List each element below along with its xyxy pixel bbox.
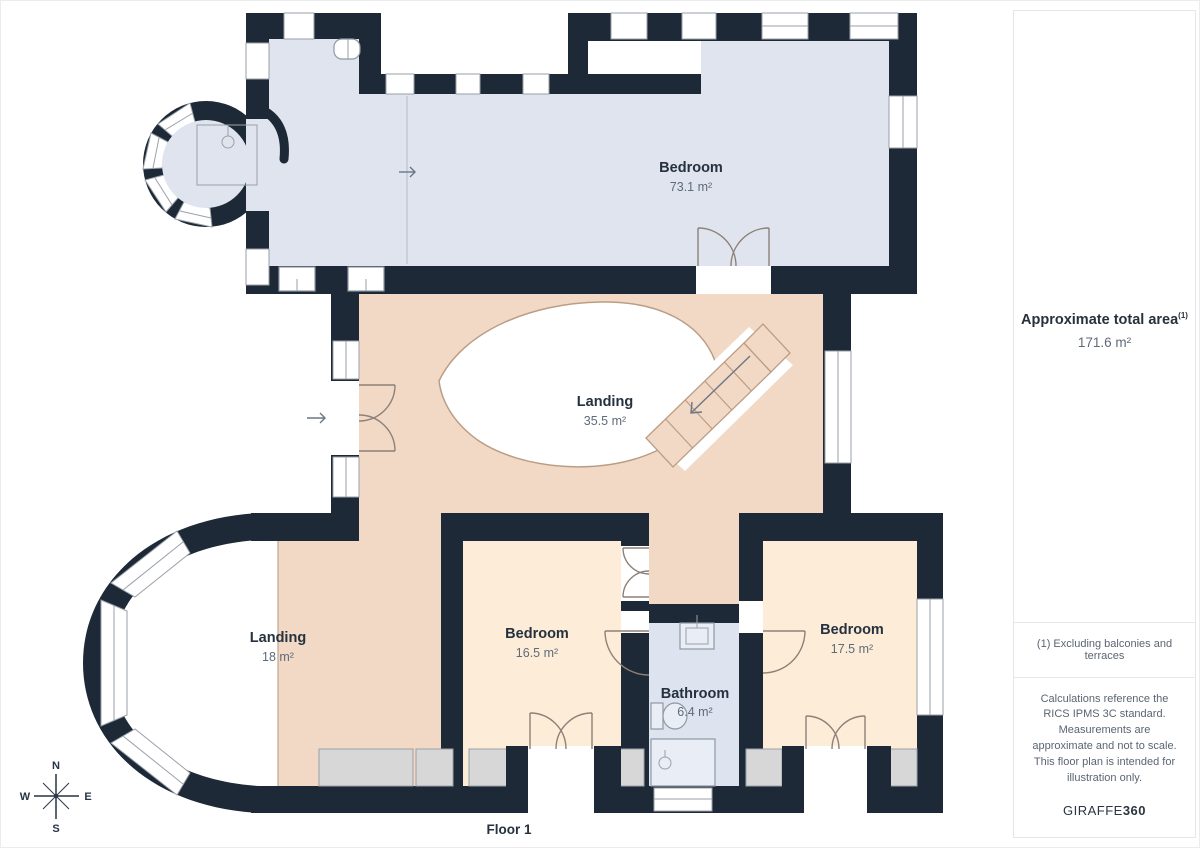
compass-n: N [52,760,60,772]
room-area: 18 m² [262,650,294,664]
room-label: Bedroom [820,622,884,638]
room-label: Bedroom [659,160,723,176]
sidebar-footnote: (1) Excluding balconies and terraces [1014,622,1195,677]
entry-arrow-icon [307,413,325,423]
room-label: Landing [577,394,633,410]
room-area: 16.5 m² [516,646,558,660]
info-sidebar: Approximate total area(1) 171.6 m² (1) E… [1013,10,1196,838]
room-area: 35.5 m² [584,414,626,428]
sidebar-spacer [1014,350,1195,622]
brand-prefix: GIRAFFE [1063,803,1123,818]
room-label: Bathroom [661,686,729,702]
disclaimer-text: Calculations reference the RICS IPMS 3C … [1032,693,1176,785]
parapet-gap [588,41,701,74]
total-area-block: Approximate total area(1) 171.6 m² [1014,311,1195,350]
compass-w: W [20,791,31,803]
corridor-floor [649,541,739,604]
sidebar-disclaimer: Calculations reference the RICS IPMS 3C … [1014,677,1195,837]
room-area: 6.4 m² [677,705,712,719]
room-label: Landing [250,630,306,646]
floor-label: Floor 1 [486,822,531,837]
footnote-marker: (1) [1178,311,1188,320]
lower-block [83,513,943,813]
sink-icon [334,39,360,59]
floor-plan-page: Bedroom 73.1 m² Landing 35.5 m² Landing … [0,0,1200,848]
toilet-icon [651,703,663,729]
compass-e: E [84,791,91,803]
room-area: 73.1 m² [670,180,712,194]
turret-bay [143,101,284,227]
brand-suffix: 360 [1123,803,1146,818]
top-block [143,13,917,294]
compass-icon: N S W E [20,760,92,835]
total-area-title: Approximate total area(1) [1014,311,1195,328]
shower-icon [651,739,715,786]
brand-logo: GIRAFFE360 [1030,802,1179,821]
room-area: 17.5 m² [831,642,873,656]
landing-block [307,294,851,541]
total-area-label: Approximate total area [1021,312,1178,328]
total-area-value: 171.6 m² [1014,335,1195,350]
door-opening [331,381,359,455]
compass-s: S [52,823,59,835]
turret-floor [162,120,250,208]
floor-plan: Bedroom 73.1 m² Landing 35.5 m² Landing … [1,1,1011,848]
room-label: Bedroom [505,626,569,642]
